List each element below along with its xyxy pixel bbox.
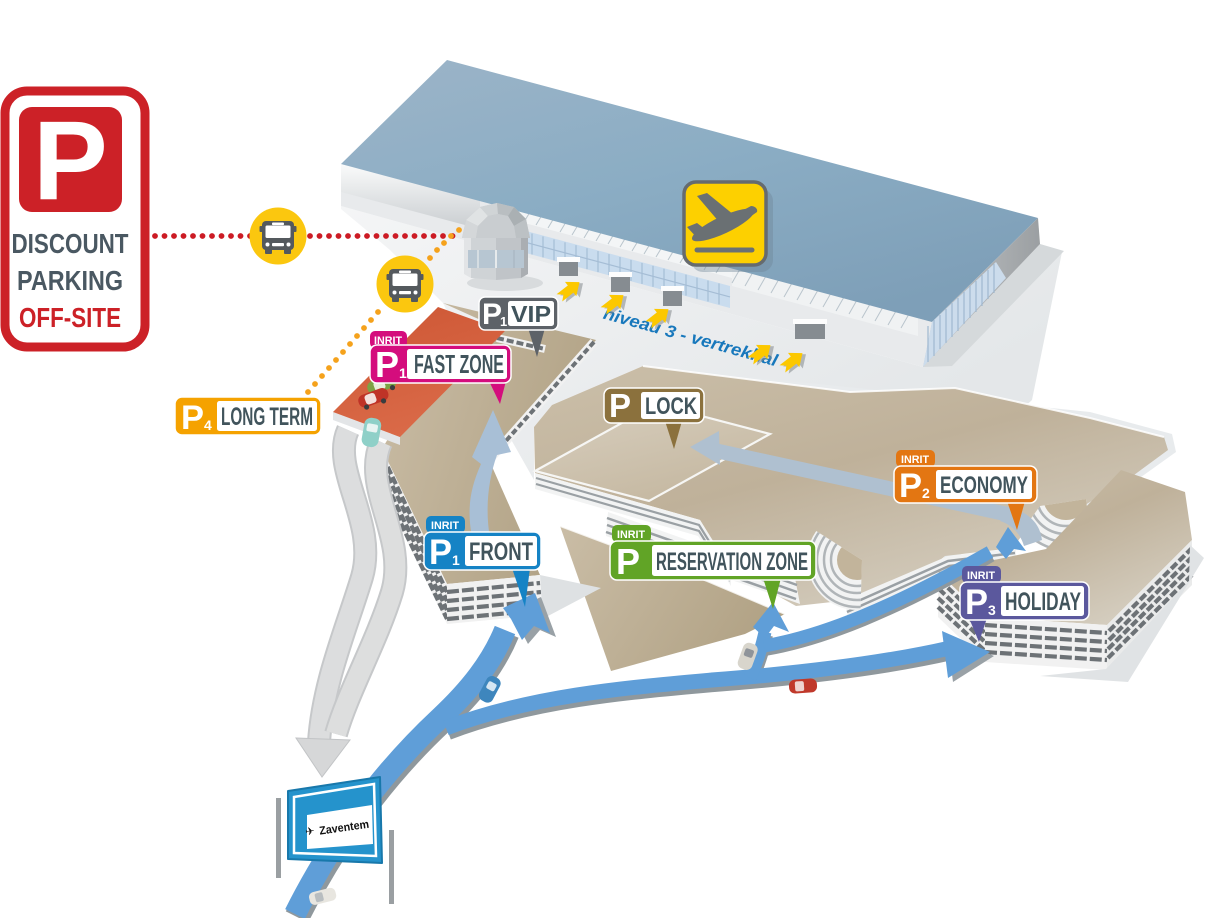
svg-text:P: P <box>482 298 502 331</box>
svg-text:2: 2 <box>922 485 930 501</box>
svg-text:RESERVATION ZONE: RESERVATION ZONE <box>656 548 808 576</box>
svg-text:P: P <box>965 583 988 622</box>
svg-text:HOLIDAY: HOLIDAY <box>1005 588 1081 616</box>
svg-text:INRIT: INRIT <box>901 454 929 466</box>
svg-text:INRIT: INRIT <box>967 570 995 582</box>
svg-text:1: 1 <box>399 365 407 381</box>
svg-text:P: P <box>429 533 452 572</box>
svg-text:P: P <box>616 541 640 582</box>
svg-text:1: 1 <box>500 314 507 329</box>
svg-text:P: P <box>33 98 108 223</box>
svg-text:3: 3 <box>988 602 996 618</box>
svg-text:P: P <box>899 467 922 505</box>
svg-text:1: 1 <box>452 552 460 568</box>
svg-text:P: P <box>375 344 399 385</box>
svg-text:4: 4 <box>204 417 212 433</box>
svg-text:ECONOMY: ECONOMY <box>940 472 1028 499</box>
svg-text:P: P <box>609 387 631 424</box>
svg-text:INRIT: INRIT <box>431 520 459 532</box>
svg-text:FRONT: FRONT <box>469 538 533 566</box>
svg-text:✈: ✈ <box>305 825 316 838</box>
svg-text:DISCOUNT: DISCOUNT <box>12 228 129 259</box>
svg-text:INRIT: INRIT <box>617 529 645 541</box>
svg-text:VIP: VIP <box>511 301 551 327</box>
svg-text:OFF-SITE: OFF-SITE <box>19 302 121 333</box>
svg-text:PARKING: PARKING <box>17 265 123 296</box>
svg-text:LONG TERM: LONG TERM <box>221 403 313 431</box>
svg-text:LOCK: LOCK <box>645 393 698 420</box>
svg-text:P: P <box>181 399 204 437</box>
svg-text:FAST ZONE: FAST ZONE <box>414 349 504 379</box>
